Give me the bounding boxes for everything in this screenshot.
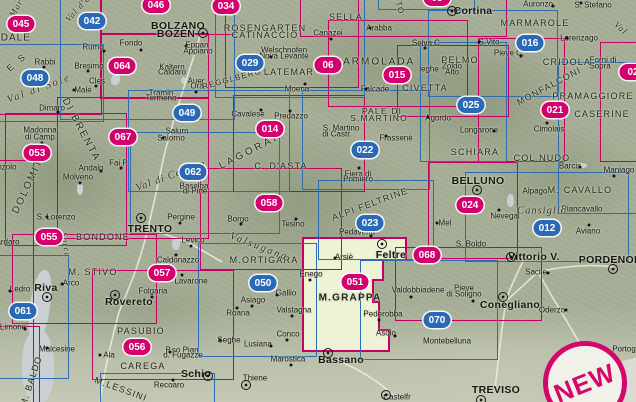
town-dot (498, 209, 501, 212)
town-dot (472, 300, 475, 303)
town-label: Sopra (589, 62, 610, 71)
town-dot (46, 216, 49, 219)
town-label: Pederobba (363, 310, 402, 319)
town-dot (378, 319, 381, 322)
town-label: Valstagna (277, 306, 312, 315)
town-label: Lavarone (174, 277, 207, 286)
range-label: SCHIARA (451, 147, 499, 157)
municipality-icon (381, 390, 391, 400)
town-dot (99, 354, 102, 357)
town-label: di Castr. (322, 130, 351, 139)
town-dot (410, 296, 413, 299)
town-dot (24, 328, 27, 331)
town-dot (370, 235, 373, 238)
sheet-badge-034[interactable]: 034 (213, 0, 240, 14)
town-dot (260, 109, 263, 112)
town-dot (73, 89, 76, 92)
town-dot (520, 55, 523, 58)
town-dot (9, 290, 12, 293)
sheet-badge-022[interactable]: 022 (352, 142, 379, 158)
town-dot (394, 335, 397, 338)
sheet-badge-012[interactable]: 012 (534, 220, 561, 236)
town-label: Aviano (576, 227, 600, 236)
town-label: Pergine (167, 213, 195, 222)
town-label: Nova Levante (259, 52, 308, 61)
town-dot (276, 294, 279, 297)
sheet-badge-024[interactable]: 024 (457, 197, 484, 213)
town-label: Fondo (120, 39, 143, 48)
town-label: Termeno (145, 94, 176, 103)
town-label: leghe (419, 65, 439, 74)
town-label: Levico (181, 236, 204, 245)
town-label: Selva C. (412, 39, 442, 48)
road-line (506, 266, 614, 301)
town-label: Montebelluna (423, 337, 471, 346)
town-label: Gallio (276, 289, 296, 298)
town-dot (286, 339, 289, 342)
town-dot (195, 91, 198, 94)
town-label: ardaro (0, 238, 20, 247)
sheet-badge-070[interactable]: 070 (424, 312, 451, 328)
town-label: Caldonazzo (157, 256, 199, 265)
city-label: Conegliano (480, 299, 540, 311)
town-label: Nevegal (490, 212, 519, 221)
town-dot (181, 274, 184, 277)
sheet-badge-015[interactable]: 015 (384, 67, 411, 83)
municipality-icon (203, 371, 213, 381)
town-dot (151, 296, 154, 299)
sheet-badge-045[interactable]: 045 (8, 16, 35, 32)
town-label: Sacile (525, 268, 547, 277)
town-dot (251, 305, 254, 308)
road-line (495, 259, 524, 390)
town-label: di Camp. (25, 133, 57, 142)
town-dot (436, 222, 439, 225)
new-badge-text: NEW (550, 357, 621, 402)
range-label: EDALE (0, 33, 31, 44)
town-label: Canazei (313, 29, 342, 38)
town-label: Oderzo (539, 306, 565, 315)
municipality-icon (198, 28, 208, 38)
city-label: Cortina (454, 5, 493, 17)
town-dot (172, 379, 175, 382)
town-label: Tesino (281, 220, 304, 229)
range-label: LATEMAR (264, 67, 314, 77)
municipality-icon (498, 292, 508, 302)
town-dot (79, 182, 82, 185)
town-label: Ledro (10, 285, 30, 294)
municipality-icon (241, 380, 251, 390)
town-dot (190, 245, 193, 248)
range-label: CASERINE (574, 109, 630, 119)
range-label: COL NUDO (514, 153, 571, 163)
sheet-badge-056[interactable]: 056 (124, 339, 151, 355)
town-label: Lusiana (244, 340, 272, 349)
town-dot (565, 309, 568, 312)
sheet-badge-062[interactable]: 062 (180, 164, 207, 180)
range-label: M. CAVALLO (548, 185, 613, 195)
town-label: Arco (63, 279, 79, 288)
municipality-icon (472, 185, 482, 195)
town-label: Caldaro (158, 68, 186, 77)
range-label: PRAMAGGIORE (552, 91, 633, 101)
town-dot (358, 167, 361, 170)
town-dot (270, 345, 273, 348)
town-dot (179, 222, 182, 225)
sheet-badge-06[interactable]: 06 (315, 57, 342, 73)
city-label: TRENTO (128, 223, 173, 235)
range-label: PASUBIO (117, 326, 165, 336)
municipality-icon (377, 239, 387, 249)
sheet-badge-029[interactable]: 029 (237, 55, 264, 71)
town-label: Marostica (271, 355, 306, 364)
sheet-badge-02[interactable]: 02 (620, 64, 636, 80)
town-dot (95, 85, 98, 88)
town-dot (87, 70, 90, 73)
town-label: Primiero (343, 175, 373, 184)
town-label: Ala (103, 351, 115, 360)
sheet-badge-046[interactable]: 046 (143, 0, 170, 13)
town-label: Rumo (82, 43, 103, 52)
sheet-badge-055[interactable]: 055 (36, 229, 63, 245)
town-dot (552, 5, 555, 8)
town-dot (334, 257, 337, 260)
sheet-badge-014[interactable]: 014 (257, 121, 284, 137)
sheet-badge-042[interactable]: 042 (79, 13, 106, 29)
town-label: Cimolais (534, 125, 565, 134)
town-label: di Pinè (183, 187, 207, 196)
range-label: CAREGA (120, 361, 165, 371)
range-label: PELMO (441, 55, 479, 65)
sheet-badge-053[interactable]: 053 (24, 145, 51, 161)
town-dot (289, 110, 292, 113)
town-dot (175, 254, 178, 257)
range-label: CIVETTA (402, 83, 448, 93)
town-dot (579, 166, 582, 169)
town-label: Valdobbiadene (392, 286, 445, 295)
town-label: Malé (74, 86, 91, 95)
municipality-icon (476, 395, 486, 402)
town-dot (169, 351, 172, 354)
town-dot (613, 175, 616, 178)
town-dot (270, 56, 273, 59)
town-label: Alpago (523, 187, 548, 196)
town-dot (46, 347, 49, 350)
town-label: Predazzo (274, 112, 308, 121)
town-label: S. Lorenzo (37, 213, 76, 222)
sheet-badge-025[interactable]: 025 (458, 97, 485, 113)
town-label: S.Vito (478, 38, 499, 47)
town-dot (588, 224, 591, 227)
town-label: di Soligno (446, 290, 481, 299)
town-dot (103, 50, 106, 53)
town-dot (566, 37, 569, 40)
town-dot (61, 283, 64, 286)
town-dot (424, 47, 427, 50)
range-label: S.MARTINO (350, 113, 408, 123)
town-dot (547, 272, 550, 275)
town-label: Maniago (604, 166, 635, 175)
town-label: Mel (439, 219, 452, 228)
town-label: Folgaria (139, 287, 168, 296)
town-label: Appiano (183, 47, 212, 56)
sheet-badge-067[interactable]: 067 (110, 129, 137, 145)
municipality-icon (506, 252, 516, 262)
sheet-badge-051[interactable]: 051 (342, 274, 369, 290)
town-dot (140, 49, 143, 52)
town-label: Enego (299, 270, 322, 279)
town-label: Recoaro (154, 381, 184, 390)
town-dot (365, 88, 368, 91)
town-label: Borgo (227, 215, 248, 224)
sheet-badge-048[interactable]: 048 (22, 70, 49, 86)
town-dot (120, 167, 123, 170)
town-label: Piancavallo (562, 205, 603, 214)
town-dot (100, 170, 103, 173)
town-dot (546, 122, 549, 125)
municipality-icon (42, 292, 52, 302)
town-dot (330, 38, 333, 41)
range-label: SELLA (329, 12, 363, 22)
range-label: CATINACCIO (232, 30, 299, 40)
town-dot (57, 111, 60, 114)
town-dot (427, 116, 430, 119)
municipality-icon (136, 213, 146, 223)
map-canvas: NEW BOLZANOBOZENCortinaTRENTOBELLUNOFelt… (0, 0, 636, 402)
town-label: Portog (612, 345, 636, 354)
town-dot (478, 41, 481, 44)
sheet-badge-058[interactable]: 058 (256, 195, 283, 211)
town-dot (493, 130, 496, 133)
sheet-badge-050[interactable]: 050 (250, 275, 277, 291)
town-dot (291, 315, 294, 318)
town-dot (309, 279, 312, 282)
range-label: CRIDOLA (543, 57, 591, 67)
range-label: M. STIVO (68, 267, 117, 277)
town-dot (219, 339, 222, 342)
town-label: Conco (276, 330, 299, 339)
range-label: MARMAROLE (501, 18, 570, 28)
municipality-icon (608, 264, 618, 274)
municipality-icon (323, 348, 333, 358)
sheet-badge-049[interactable]: 049 (174, 105, 201, 121)
town-dot (240, 223, 243, 226)
town-dot (162, 137, 165, 140)
sheet-badge-016[interactable]: 016 (517, 35, 544, 51)
town-label: Arsiè (335, 253, 353, 262)
sheet-badge-061[interactable]: 061 (10, 303, 37, 319)
range-label: MARMOLADA (333, 57, 415, 68)
town-dot (290, 364, 293, 367)
sheet-badge-068[interactable]: 068 (414, 247, 441, 263)
city-label: PORDENONE (579, 254, 636, 266)
valley-label: Cansiglio (517, 206, 567, 217)
municipality-icon (447, 6, 457, 16)
town-dot (369, 27, 372, 30)
town-label: Asiago (241, 296, 265, 305)
town-dot (295, 218, 298, 221)
sheet-badge-021[interactable]: 021 (542, 102, 569, 118)
town-label: Alto (445, 68, 459, 77)
town-label: inzolo (0, 163, 16, 172)
town-label: Auronzo (523, 0, 553, 9)
town-label: Limone (0, 323, 26, 332)
range-label: M.GRAPPA (319, 293, 382, 304)
town-dot (236, 307, 239, 310)
range-label: C. D'ASTA (254, 161, 307, 171)
town-dot (385, 135, 388, 138)
town-label: Moena (285, 85, 309, 94)
town-dot (304, 83, 307, 86)
town-label: S. Boldo (456, 240, 486, 249)
municipality-icon (110, 290, 120, 300)
town-dot (580, 2, 583, 5)
sheet-badge-057[interactable]: 057 (149, 265, 176, 281)
city-label: Feltre (376, 249, 406, 261)
town-label: Malcesine (39, 345, 75, 354)
city-label: BOZEN (157, 28, 195, 40)
town-label: Roana (226, 309, 250, 318)
sheet-badge-023[interactable]: 023 (357, 215, 384, 231)
town-dot (43, 66, 46, 69)
town-label: Molveno (63, 173, 93, 182)
range-label: BONDONE (76, 232, 130, 242)
sheet-badge-064[interactable]: 064 (109, 58, 136, 74)
